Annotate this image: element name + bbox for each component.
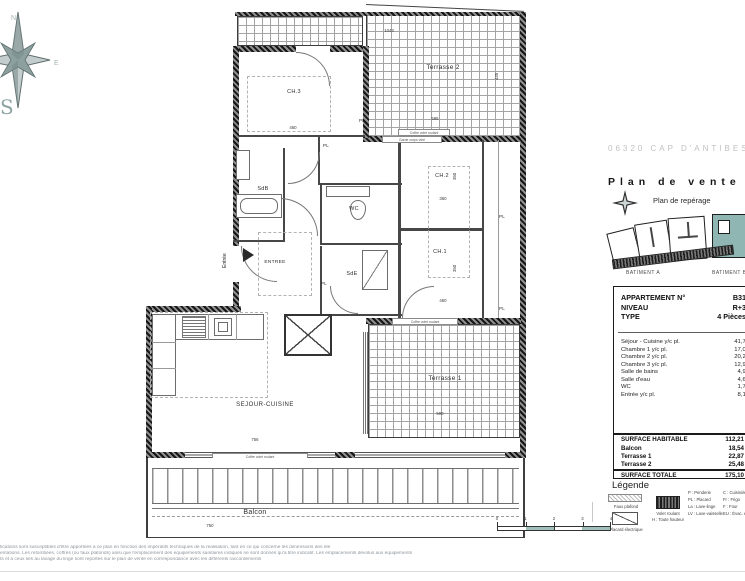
compass-e-label: E	[54, 60, 59, 67]
counter-line	[152, 342, 176, 343]
batiment-a-label: BATIMENT A	[626, 270, 660, 276]
scalebar-segment	[582, 527, 610, 530]
balcony-railing	[152, 468, 519, 504]
room-name: Salle de bains	[621, 369, 658, 375]
closet-label-pl: PL	[492, 214, 512, 219]
room-area: 41,70	[734, 339, 745, 345]
total-row: SURFACE HABITABLE112,21	[621, 436, 745, 443]
room-area: 17,03	[734, 347, 745, 353]
volet-hauteur-label: H : Toute hauteur	[646, 517, 690, 522]
scalebar-tick-label: 4	[608, 516, 614, 521]
dim-ch-h: 350	[452, 265, 457, 272]
room-label-entree-hall: ENTREE	[255, 260, 295, 265]
legend-item: LV : Lave-vaisselle	[688, 511, 723, 516]
scalebar-tick-label: 3	[580, 516, 586, 521]
room-name: WC	[621, 384, 631, 390]
placard-electrique-symbol	[612, 512, 638, 525]
counter-line	[236, 314, 237, 340]
faux-plafond-dashed	[247, 76, 331, 132]
scalebar-segment	[526, 527, 554, 530]
total-area: 175,10	[725, 472, 744, 479]
faux-plafond-dashed	[428, 166, 470, 278]
room-name: Chambre 2 y/c pl.	[621, 354, 667, 360]
door-arc	[330, 286, 358, 314]
counter-line	[152, 368, 176, 369]
legend-item: Fr : Frigo	[723, 497, 740, 502]
scalebar-tick	[526, 522, 527, 526]
garde-corps-strip: Garde corps vitré	[382, 136, 442, 143]
scalebar-segment	[498, 527, 526, 530]
scalebar-tick	[610, 522, 611, 526]
roof-edge-line	[366, 4, 524, 12]
room-area: 8,10	[738, 392, 745, 398]
legend-item: La : Lave-linge	[688, 504, 715, 509]
room-label-sdb: SdB	[248, 186, 278, 192]
legend-item: F : Four	[723, 504, 738, 509]
closet-line	[498, 140, 499, 318]
room-area-row: Chambre 2 y/c pl.20,29	[621, 354, 745, 360]
legend-title: Légende	[612, 480, 649, 491]
total-name: SURFACE HABITABLE	[621, 436, 688, 443]
locator-plan	[606, 208, 745, 270]
apartment-info-box: APPARTEMENT N° B31 NIVEAU R+3 TYPE 4 Piè…	[613, 286, 745, 479]
scalebar-tick	[497, 522, 498, 526]
kitchen-sink-basin	[218, 322, 228, 332]
total-name: Balcon	[621, 445, 642, 452]
bathroom-vanity	[236, 150, 250, 180]
batiment-b-label: BATIMENT B	[712, 270, 745, 276]
partition	[320, 183, 322, 245]
closet-label-pl: PL	[316, 143, 336, 148]
room-label-ch2: CH.2	[420, 173, 464, 179]
dim-ch3: 460	[278, 125, 308, 130]
type-label: TYPE	[621, 312, 640, 321]
total-row: SURFACE TOTALE175,10	[621, 472, 745, 479]
dim-terr2-h: 445	[494, 73, 499, 80]
scalebar-tick-label: 2	[551, 516, 557, 521]
window	[363, 332, 368, 434]
bathtub-inner	[240, 198, 278, 214]
faux-plafond-symbol	[608, 494, 642, 502]
room-name: Salle d'eau	[621, 377, 650, 383]
door-arc	[288, 152, 320, 184]
dim-ch2: 360	[428, 196, 458, 201]
dim-balcon: 750	[195, 523, 225, 528]
room-area: 4,95	[738, 369, 745, 375]
faux-plafond-label: Faux plafond	[602, 504, 650, 509]
scalebar-tick	[554, 522, 555, 526]
room-label-sejour: SEJOUR-CUISINE	[205, 402, 325, 408]
room-area: 20,29	[734, 354, 745, 360]
room-label-terrasse2: Terrasse 2	[398, 64, 488, 71]
shower	[362, 250, 388, 290]
partition	[320, 183, 402, 185]
stove	[182, 316, 206, 338]
dim-terr2: 595	[420, 116, 450, 121]
closet-label-pl: PL	[352, 118, 372, 123]
total-row: Terrasse 225,48	[621, 461, 745, 468]
partition	[482, 140, 484, 318]
room-name: Séjour - Cuisine y/c pl.	[621, 339, 680, 345]
room-area-row: Chambre 3 y/c pl.12,94	[621, 362, 745, 368]
total-area: 25,48	[729, 461, 744, 468]
apartment-number-label: APPARTEMENT N°	[621, 293, 685, 302]
wc-cistern	[326, 186, 370, 197]
room-area: 12,94	[734, 362, 745, 368]
counter-line	[208, 314, 209, 340]
legend-item: EU : Évac. eaux usées	[723, 511, 745, 516]
niveau-row: NIVEAU R+3	[621, 303, 745, 312]
disclaimer-line: ts et à ceux liés au lavage du linge son…	[0, 557, 622, 563]
type-row: TYPE 4 Pièces	[621, 312, 745, 321]
partition	[320, 314, 402, 316]
balcony-dashed-line	[152, 516, 519, 517]
dim-sejour: 756	[240, 437, 270, 442]
room-area-row: Salle de bains4,95	[621, 369, 745, 375]
room-area-row: WC1,70	[621, 384, 745, 390]
totals-bottom-line	[614, 469, 745, 471]
legend-item: PL : Placard	[688, 497, 711, 502]
locator-wall	[650, 227, 655, 247]
room-area-row: Séjour - Cuisine y/c pl.41,70	[621, 339, 745, 345]
room-name: Chambre 3 y/c pl.	[621, 362, 667, 368]
volet-roulant-symbol	[656, 496, 680, 509]
coffre-volet-strip: Coffre volet roulant	[392, 318, 458, 325]
entrance-label: Entrée	[222, 253, 228, 268]
total-name: Terrasse 2	[621, 461, 652, 468]
scalebar-tick	[583, 522, 584, 526]
total-name: SURFACE TOTALE	[621, 472, 676, 479]
info-divider	[618, 332, 745, 333]
scalebar-tick-label: 0	[494, 516, 500, 521]
total-area: 18,54	[729, 445, 744, 452]
dim-terr1: 590	[425, 411, 455, 416]
partition	[239, 135, 365, 137]
legend-item: P : Penderie	[688, 490, 711, 495]
type-value: 4 Pièces	[717, 312, 745, 321]
locator-room	[718, 220, 730, 234]
door-opening	[233, 246, 239, 282]
dim-terr2-top: 1043	[374, 28, 404, 33]
door-arc	[280, 198, 318, 236]
niveau-label: NIVEAU	[621, 303, 648, 312]
room-name: Chambre 1 y/c pl.	[621, 347, 667, 353]
page: { "title_block": { "location": "06320 CA…	[0, 0, 745, 581]
total-area: 22,87	[729, 453, 744, 460]
total-row: Terrasse 122,87	[621, 453, 745, 460]
room-label-sde: SdE	[338, 271, 366, 277]
room-area-row: Chambre 1 y/c pl.17,03	[621, 347, 745, 353]
room-label-ch1: CH.1	[418, 249, 462, 255]
scalebar	[497, 526, 611, 531]
project-location: 06320 CAP D'ANTIBES	[608, 144, 745, 153]
document-title: Plan de vente	[608, 176, 745, 188]
compass-rose-icon: N E S	[0, 2, 88, 124]
compass-s-label: S	[0, 95, 14, 119]
room-label-balcon: Balcon	[225, 509, 285, 516]
coffre-volet-strip: Coffre volet roulant	[398, 129, 450, 136]
balcony-line	[152, 508, 519, 509]
wall-segment	[363, 46, 369, 138]
room-label-ch3: CH.3	[272, 89, 316, 95]
closet-label-pl: PL	[492, 306, 512, 311]
room-label-wc: WC	[342, 206, 366, 212]
duct-shaft	[284, 314, 332, 356]
total-name: Terrasse 1	[621, 453, 652, 460]
volet-roulant-label: Volet roulant	[646, 511, 690, 516]
dim-ch1: 460	[428, 298, 458, 303]
partition	[320, 243, 402, 245]
scalebar-segment	[554, 527, 583, 530]
kitchen-counter	[152, 314, 176, 396]
wall-segment	[235, 12, 525, 16]
dim-ch-h: 350	[452, 173, 457, 180]
room-area-row: Entrée y/c pl.8,10	[621, 392, 745, 398]
bottom-rule	[0, 571, 745, 572]
entry-arrow-icon	[243, 248, 254, 262]
wall-segment	[520, 12, 526, 458]
room-area-row: Salle d'eau4,68	[621, 377, 745, 383]
room-area: 4,68	[738, 377, 745, 383]
legend-item: C : Cuisinière	[723, 490, 745, 495]
room-label-terrasse1: Terrasse 1	[400, 375, 490, 382]
apartment-number-value: B31	[733, 293, 745, 302]
total-row: Balcon18,54	[621, 445, 745, 452]
scalebar-tick-label: 1	[523, 516, 529, 521]
door-opening	[296, 46, 330, 52]
room-name: Entrée y/c pl.	[621, 392, 655, 398]
document-subtitle: Plan de repérage	[653, 196, 745, 205]
compass-n-label: N	[11, 15, 16, 22]
terrace2-strip	[237, 16, 363, 46]
disclaimer-text: fications sont susceptibles d'être appor…	[0, 545, 622, 563]
niveau-value: R+3	[733, 303, 745, 312]
total-area: 112,21	[725, 436, 744, 443]
totals-top-line	[614, 433, 745, 435]
closet-label-pl: PL	[314, 281, 334, 286]
room-area: 1,70	[738, 384, 745, 390]
apartment-number-row: APPARTEMENT N° B31	[621, 293, 745, 302]
